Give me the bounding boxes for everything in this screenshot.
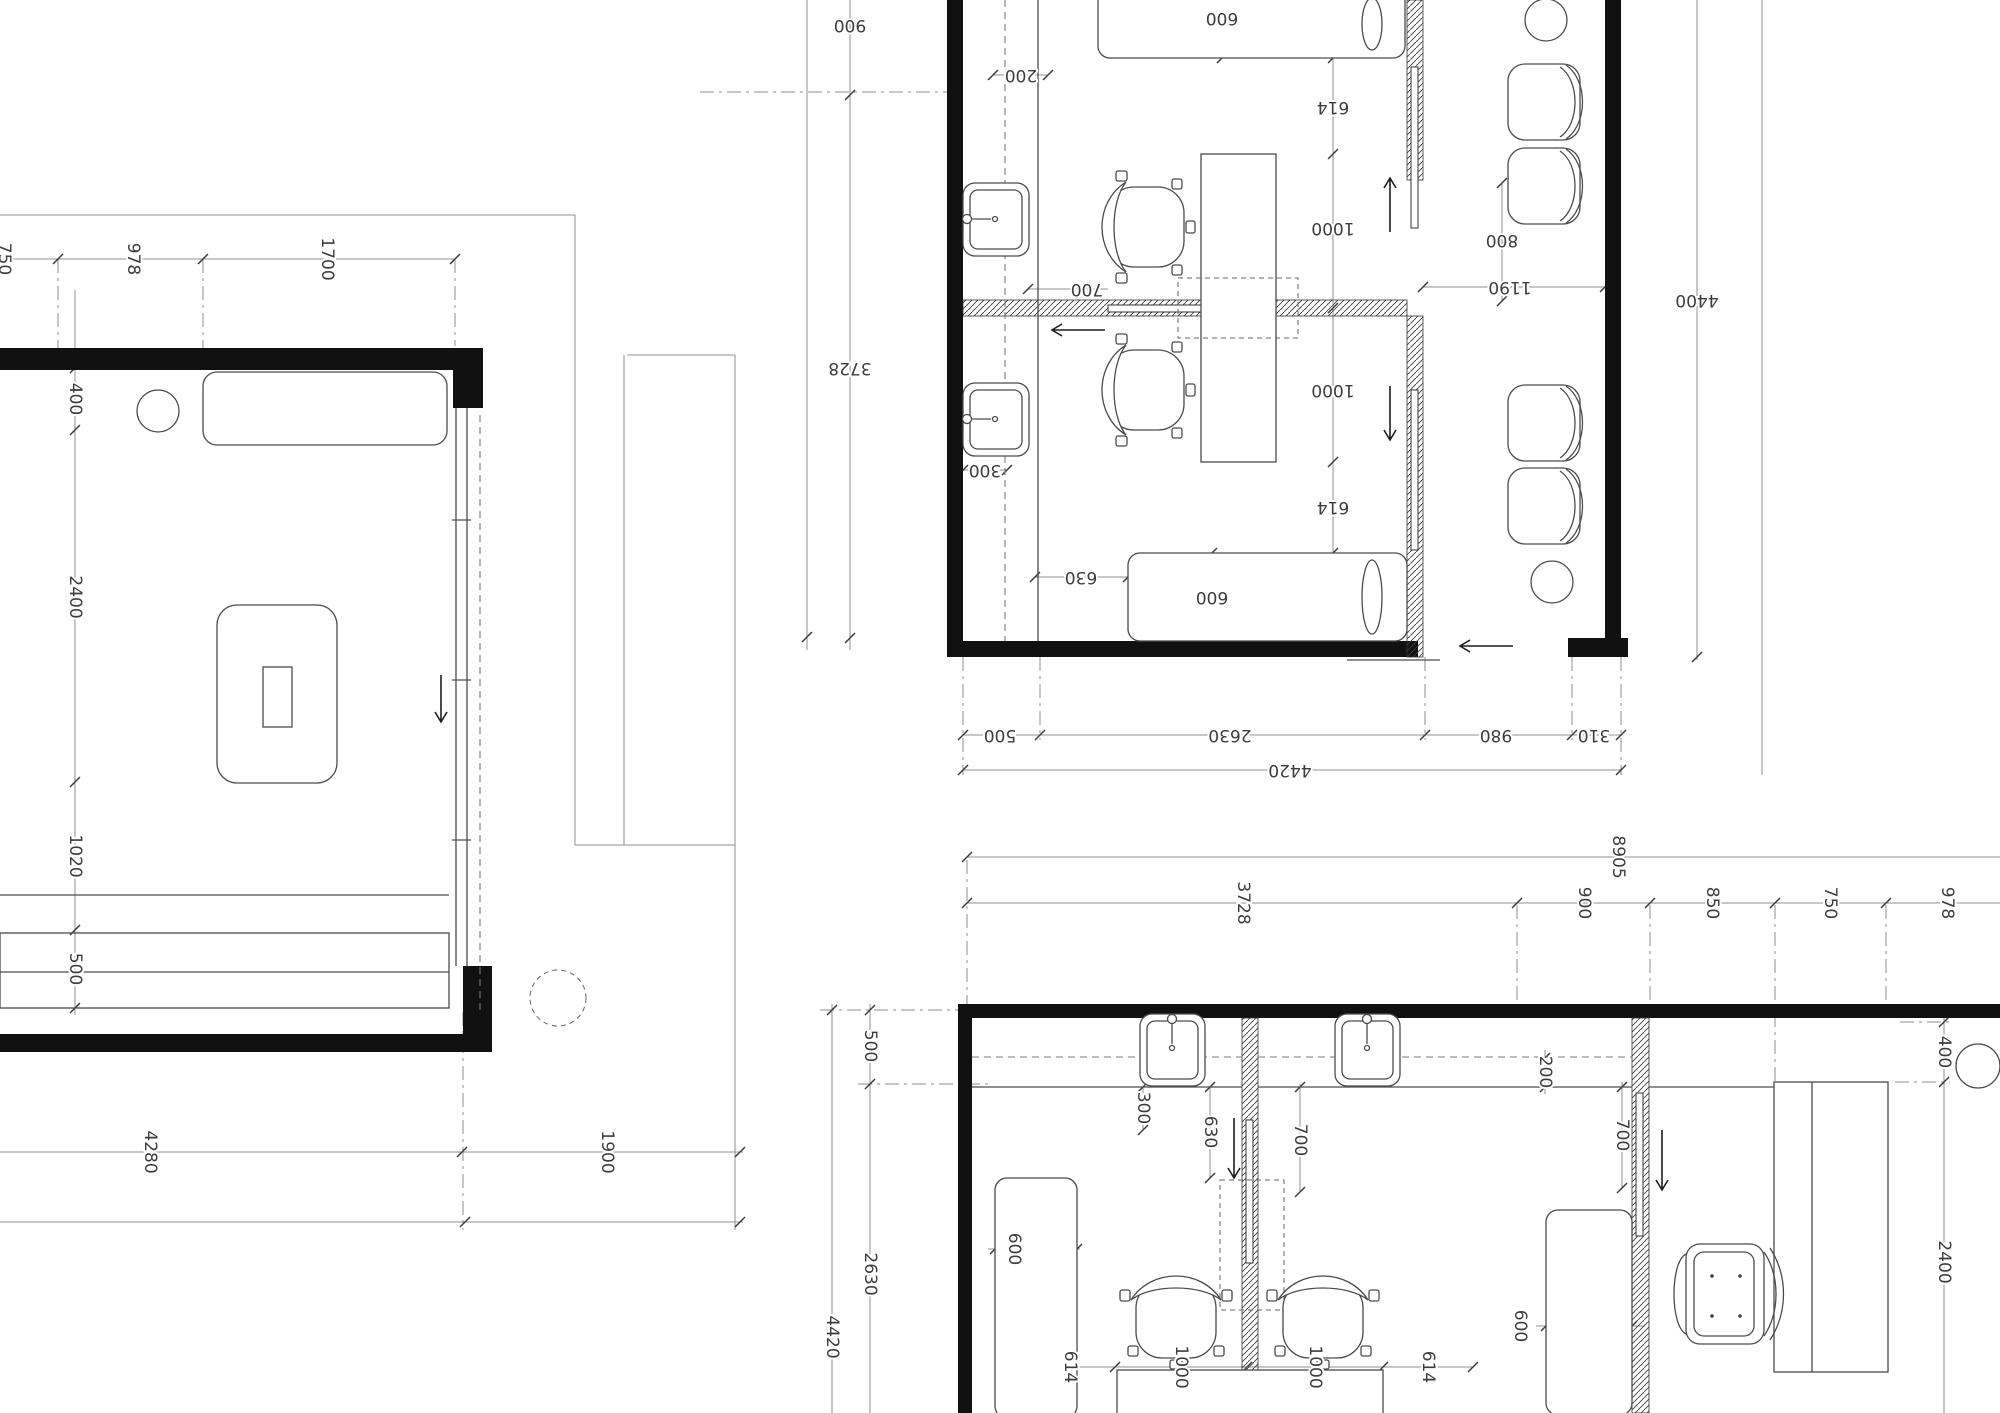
work-table: [1117, 1370, 1383, 1413]
dimension-label: 600: [1196, 587, 1228, 607]
dimension-label: 700: [1071, 279, 1103, 299]
dimension-label: 1000: [1305, 1345, 1325, 1388]
door-swing-arrow: [1228, 1118, 1240, 1178]
adjacent-space-outline: [624, 355, 735, 1230]
dimension-label: 700: [1612, 1119, 1632, 1151]
sofa: [1774, 1082, 1888, 1372]
waiting-chair: [1508, 148, 1583, 224]
dimension-label: 600: [1004, 1233, 1024, 1265]
wall-corner: [1568, 638, 1628, 657]
dimension-label: 2630: [1208, 725, 1251, 745]
lower-suite-plan: 8905372890085075097850026304420300630600…: [820, 835, 2000, 1413]
left-room-plan: 75097817004002400102050042801900: [0, 215, 745, 1230]
styling-chair: [1102, 334, 1195, 446]
floor-outline-line: [0, 215, 735, 845]
dimension-label: 1190: [1488, 277, 1531, 297]
dimension-label: 4400: [1675, 290, 1718, 310]
stool: [1525, 0, 1567, 41]
wall: [947, 641, 1418, 657]
dimension-line: [963, 0, 1222, 641]
bench: [1546, 1210, 1632, 1413]
dimension-label: 200: [1535, 1056, 1555, 1088]
dimension-label: 600: [1206, 8, 1238, 28]
dimension-label: 600: [1510, 1310, 1530, 1342]
entry-arrow: [435, 675, 447, 722]
dimension-label: 630: [1065, 567, 1097, 587]
dimension-label: 614: [1317, 97, 1349, 117]
dimension-line: [807, 0, 850, 650]
planter-dashed-circle: [530, 970, 586, 1026]
dimension-label: 1000: [1311, 218, 1354, 238]
waiting-chair: [1508, 468, 1583, 544]
sink: [963, 383, 1030, 456]
dimension-label: 300: [1133, 1092, 1153, 1124]
sliding-door: [1636, 1093, 1643, 1236]
wall: [958, 1004, 972, 1413]
dimension-label: 1000: [1311, 380, 1354, 400]
dimension-label: 2400: [1934, 1240, 1954, 1283]
sliding-door: [1411, 390, 1418, 550]
window: [452, 408, 471, 966]
dimension-label: 1900: [597, 1130, 617, 1173]
dimension-label: 900: [834, 15, 866, 35]
door-swing-arrow: [1384, 386, 1396, 440]
dimension-label: 300: [969, 460, 1001, 480]
upper-room-plan: 9003728200600614100010006148007003006306…: [700, 0, 1762, 780]
entry-arrow: [1460, 640, 1513, 652]
dimension-label: 900: [1574, 887, 1594, 919]
dimension-label: 1000: [1171, 1345, 1191, 1388]
dimension-label: 1020: [65, 834, 85, 877]
dimension-label: 310: [1578, 725, 1610, 745]
sink: [1335, 1014, 1400, 1086]
dimension-label: 2630: [860, 1252, 880, 1295]
ceiling-light: [137, 390, 179, 432]
dimension-label: 3728: [1233, 881, 1253, 924]
dimension-label: 980: [1480, 725, 1512, 745]
dimension-label: 4280: [140, 1130, 160, 1173]
dimension-label: 978: [123, 243, 143, 275]
wall: [958, 1004, 2000, 1018]
dimension-label: 750: [1820, 887, 1840, 919]
stool: [1531, 561, 1573, 603]
wall: [0, 348, 483, 370]
floor-plan-sheet: 75097817004002400102050042801900: [0, 0, 2000, 1413]
dimension-line: [967, 857, 2000, 903]
dimension-label: 4420: [1268, 760, 1311, 780]
dimension-label: 2400: [65, 575, 85, 618]
dimension-label: 400: [1934, 1036, 1954, 1068]
wall-corner: [463, 966, 492, 1052]
sliding-door: [1246, 1120, 1253, 1263]
bench: [1128, 553, 1407, 641]
sink: [1140, 1014, 1205, 1086]
wall: [0, 1034, 492, 1052]
dimension-label: 400: [65, 383, 85, 415]
door-swing-arrow: [1052, 324, 1105, 336]
dimension-label: 614: [1418, 1351, 1438, 1383]
dimension-label: 200: [1005, 65, 1037, 85]
wall: [1605, 0, 1621, 640]
ceiling-light: [1956, 1044, 2000, 1088]
dimension-label: 1700: [317, 237, 337, 280]
dimension-line: [1697, 0, 1762, 775]
sink: [963, 183, 1030, 256]
dimension-line: [0, 1152, 743, 1222]
waiting-chair: [1508, 64, 1583, 140]
dimension-label: 750: [0, 243, 14, 275]
work-table: [1201, 154, 1276, 462]
dimension-label: 800: [1486, 230, 1518, 250]
dimension-label: 614: [1060, 1351, 1080, 1383]
office-chair: [1674, 1244, 1784, 1344]
waiting-chair: [1508, 385, 1583, 461]
dimension-label: 630: [1200, 1116, 1220, 1148]
bench: [1098, 0, 1405, 58]
dimension-label: 978: [1937, 887, 1957, 919]
sliding-door: [1411, 67, 1418, 228]
floor-plan-drawing: 75097817004002400102050042801900: [0, 0, 2000, 1413]
dimension-label: 614: [1317, 497, 1349, 517]
dimension-label: 500: [860, 1030, 880, 1062]
dimension-label: 3728: [828, 358, 871, 378]
dimension-label: 4420: [822, 1315, 842, 1358]
dimension-label: 700: [1290, 1124, 1310, 1156]
door-swing-arrow: [1656, 1130, 1668, 1190]
sofa: [203, 372, 447, 445]
wall-corner: [453, 348, 483, 408]
dimension-label: 850: [1702, 887, 1722, 919]
dimension-label: 500: [65, 953, 85, 985]
dimension-label: 500: [984, 725, 1016, 745]
coffee-table: [217, 605, 337, 783]
door-swing-arrow: [1384, 178, 1396, 232]
styling-chair: [1102, 171, 1195, 283]
dimension-label: 8905: [1608, 835, 1628, 878]
wall: [947, 0, 963, 657]
